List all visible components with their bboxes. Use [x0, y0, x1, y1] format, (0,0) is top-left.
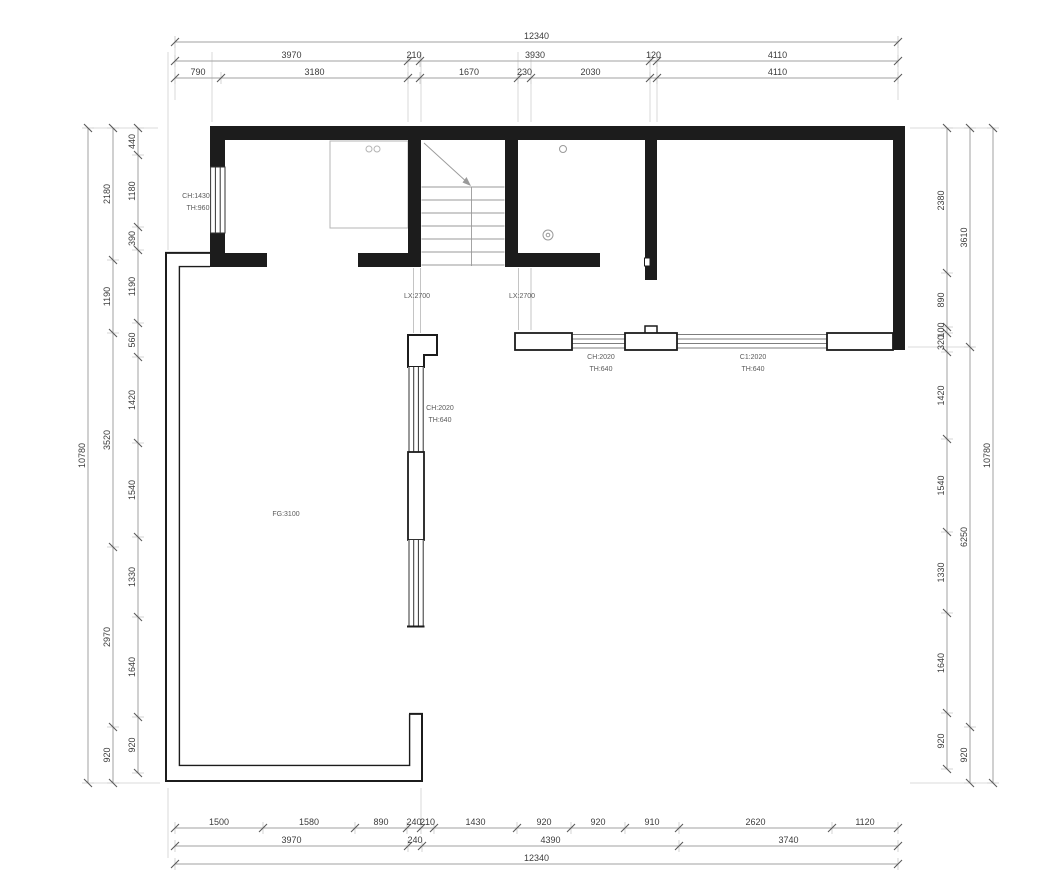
dimension-text: 3610 — [959, 227, 969, 247]
dimension-text: 920 — [127, 737, 137, 752]
dimension-text: 2380 — [936, 190, 946, 210]
bedroom-stair-wall — [408, 140, 421, 267]
dimension-text: 1190 — [127, 277, 137, 296]
west-column-window-label-b: TH:640 — [429, 417, 452, 424]
column-pier — [408, 452, 424, 540]
dimension-text: 1330 — [936, 562, 946, 582]
dimension-text: 890 — [936, 292, 946, 307]
dimension-text: 1420 — [127, 390, 137, 410]
bathroom-fixtures — [543, 146, 567, 241]
bath-south-wall — [518, 253, 600, 267]
dimension-text: 920 — [536, 817, 551, 827]
east-wall — [893, 126, 905, 350]
dimension-text: 1330 — [127, 567, 137, 587]
dimension-text: 920 — [102, 747, 112, 762]
window-sill-block — [515, 333, 572, 350]
west-jog-wall — [210, 253, 267, 267]
stair-arrow-icon — [463, 177, 472, 186]
south-window-label-2a: C1:2020 — [740, 354, 767, 361]
annotation-layer: CH:1430TH:960LX:2700LX:2700CH:2020TH:640… — [182, 193, 766, 518]
wardrobe-outline — [330, 141, 408, 228]
dimension-text: 3740 — [778, 835, 798, 845]
dimension-text: 1640 — [127, 657, 137, 677]
south-window-label-2b: TH:640 — [742, 366, 765, 373]
west-wall-window — [210, 167, 226, 233]
dimension-text: 1190 — [102, 287, 112, 306]
stairs — [422, 143, 505, 266]
dimension-text: 10780 — [77, 443, 87, 468]
stair-bath-wall — [505, 140, 518, 267]
dimension-text: 210 — [420, 817, 435, 827]
dimension-text: 920 — [959, 747, 969, 762]
dimension-text: 4390 — [540, 835, 560, 845]
passage-label-1: LX:2700 — [404, 293, 430, 300]
dimension-text: 320 — [936, 335, 946, 350]
dimension-text: 390 — [127, 231, 137, 246]
drain-icon — [543, 230, 553, 240]
dimension-text: 3970 — [281, 50, 301, 60]
dimension-text: 1640 — [936, 653, 946, 673]
window-sill-block — [827, 333, 893, 350]
dimension-text: 6250 — [959, 527, 969, 547]
dimension-text: 920 — [590, 817, 605, 827]
passage-lines — [414, 268, 532, 333]
west-window-column — [407, 335, 437, 627]
dimension-text: 12340 — [524, 31, 549, 41]
dimension-text: 240 — [407, 835, 422, 845]
dimension-text: 2620 — [745, 817, 765, 827]
floor-plan-canvas: 1234039702103930120411079031801670230203… — [0, 0, 1053, 878]
west-column-window-label-a: CH:2020 — [426, 405, 454, 412]
dimension-text: 1540 — [127, 480, 137, 500]
dimension-text: 4110 — [768, 67, 787, 77]
dimension-text: 1120 — [855, 817, 874, 827]
west-window-label-1: CH:1430 — [182, 193, 210, 200]
passage-label-2: LX:2700 — [509, 293, 535, 300]
south-window-wall — [515, 326, 893, 350]
fixture-icon — [560, 146, 567, 153]
dimension-text: 2180 — [102, 184, 112, 204]
dimension-text: 1580 — [299, 817, 319, 827]
dimension-text: 2030 — [580, 67, 600, 77]
dimension-text: 790 — [190, 67, 205, 77]
dimension-text: 3970 — [281, 835, 301, 845]
dimension-text: 12340 — [524, 853, 549, 863]
south-window-label-1b: TH:640 — [590, 366, 613, 373]
dimension-text: 3930 — [525, 50, 545, 60]
dimension-text: 210 — [406, 50, 421, 60]
dimension-text: 560 — [127, 332, 137, 347]
wardrobe-knob-icon — [374, 146, 380, 152]
dimension-text: 2970 — [102, 627, 112, 647]
floor-height-label: FG:3100 — [272, 511, 299, 518]
walls-solid — [210, 126, 905, 350]
dimension-text: 10780 — [982, 443, 992, 468]
west-wall-upper-b — [210, 233, 225, 253]
dimension-text: 3180 — [304, 67, 324, 77]
west-wall-upper-a — [210, 126, 225, 167]
column-l-wall — [408, 335, 437, 367]
dimension-text: 890 — [373, 817, 388, 827]
floor-plan-drawing: 1234039702103930120411079031801670230203… — [0, 0, 1053, 878]
north-wall — [210, 126, 905, 140]
drain-icon-inner — [546, 233, 550, 237]
dimension-text: 920 — [936, 733, 946, 748]
dimension-text: 1670 — [459, 67, 479, 77]
wardrobe — [330, 141, 408, 228]
dimension-text: 120 — [646, 50, 661, 60]
dimension-text: 1420 — [936, 385, 946, 405]
dimension-text: 1180 — [127, 181, 137, 200]
wardrobe-knob-icon — [366, 146, 372, 152]
window-sill-block — [625, 333, 677, 350]
dimension-text: 910 — [644, 817, 659, 827]
stair-direction-line — [424, 143, 469, 184]
dimension-text: 4110 — [768, 50, 787, 60]
dimension-text: 1430 — [465, 817, 485, 827]
dimension-text: 1500 — [209, 817, 229, 827]
dimension-text: 1540 — [936, 475, 946, 495]
south-window-label-1a: CH:2020 — [587, 354, 615, 361]
dimension-text: 440 — [127, 134, 137, 149]
bath-east-wall-notch — [645, 258, 651, 266]
extension-lines — [92, 36, 996, 858]
west-window-label-2: TH:960 — [187, 205, 210, 212]
dimension-text: 3520 — [102, 430, 112, 450]
dimension-text: 230 — [517, 67, 532, 77]
